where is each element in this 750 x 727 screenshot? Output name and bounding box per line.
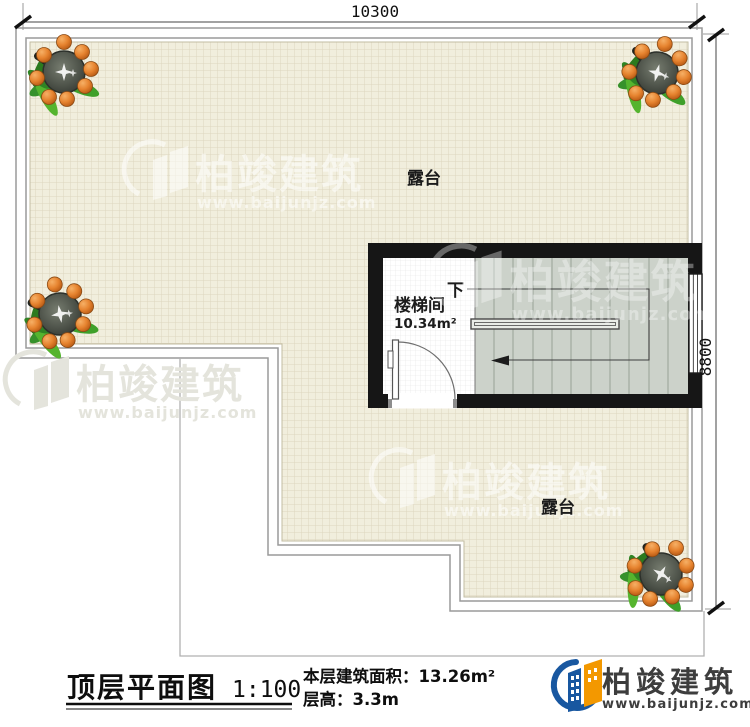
company-logo: 柏竣建筑 www.baijunjz.com bbox=[554, 659, 750, 712]
floor-plan-sheet: 柏竣建筑 www.baijunjz.com 柏竣建筑 www.baijunjz.… bbox=[0, 0, 750, 727]
watermark-url: www.baijunjz.com bbox=[444, 501, 623, 520]
dimension-top: 10300 bbox=[15, 2, 705, 30]
floor-plan-drawing: 柏竣建筑 www.baijunjz.com 柏竣建筑 www.baijunjz.… bbox=[0, 0, 750, 727]
watermark-title: 柏竣建筑 bbox=[509, 256, 697, 309]
plan-title: 顶层平面图 bbox=[67, 671, 217, 704]
terrace-label-top: 露台 bbox=[407, 168, 441, 189]
dimension-right-value: 8800 bbox=[696, 338, 715, 377]
watermark-title: 柏竣建筑 bbox=[195, 152, 363, 198]
dimension-top-value: 10300 bbox=[351, 2, 399, 21]
watermark-url: www.baijunjz.com bbox=[512, 304, 713, 325]
watermark-title: 柏竣建筑 bbox=[76, 362, 244, 408]
company-logo-icon bbox=[554, 659, 602, 712]
legend: 顶层平面图 1:100 本层建筑面积：13.26m² 层高：3.3m bbox=[66, 666, 495, 709]
watermark-left-area: 柏竣建筑 www.baijunjz.com bbox=[5, 352, 257, 422]
stairwell-area-label: 10.34m² bbox=[394, 316, 457, 332]
company-logo-url: www.baijunjz.com bbox=[602, 697, 750, 712]
door-leaf bbox=[393, 340, 399, 399]
watermark-url: www.baijunjz.com bbox=[197, 193, 376, 212]
watermark-title: 柏竣建筑 bbox=[442, 460, 610, 506]
stair-down-label: 下 bbox=[447, 281, 464, 301]
floor-height-text: 层高：3.3m bbox=[303, 689, 399, 709]
door-hinge bbox=[388, 351, 393, 368]
terrace-label-bottom: 露台 bbox=[541, 497, 575, 518]
watermark-url: www.baijunjz.com bbox=[78, 403, 257, 422]
floor-area-text: 本层建筑面积：13.26m² bbox=[303, 666, 495, 686]
plan-scale: 1:100 bbox=[232, 677, 301, 703]
company-logo-name: 柏竣建筑 bbox=[602, 665, 738, 699]
